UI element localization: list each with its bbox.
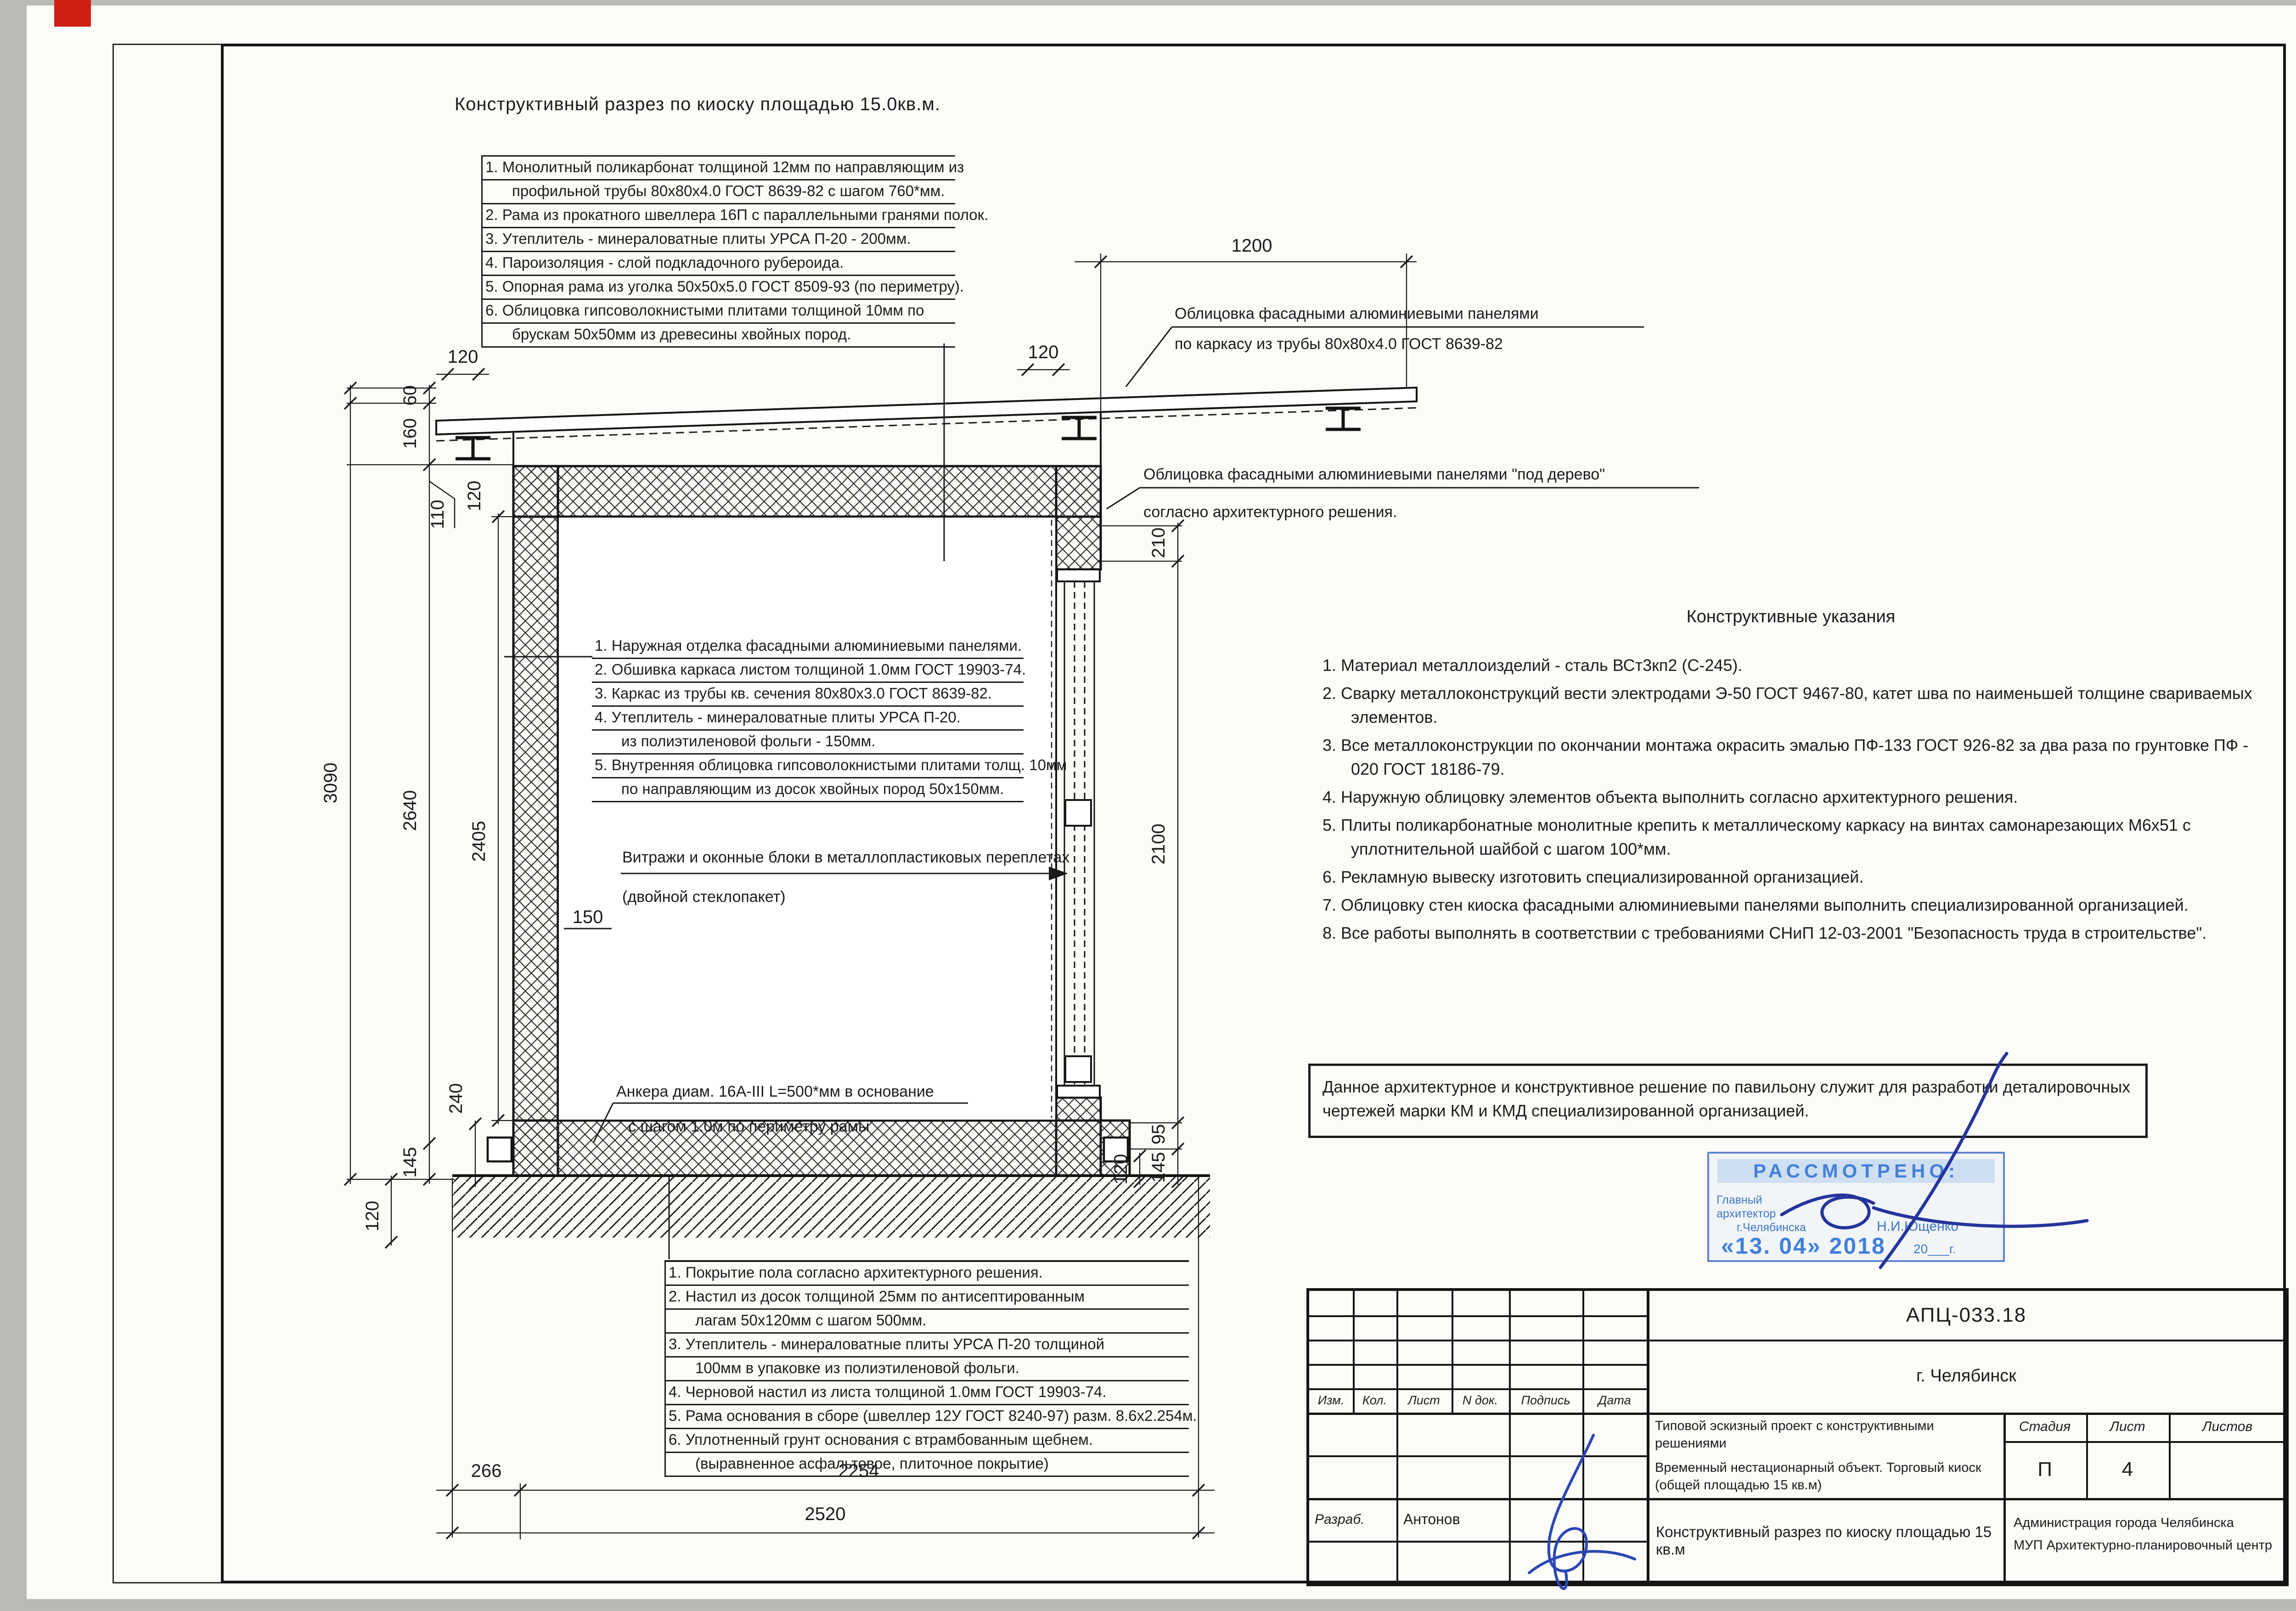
list-line: лагам 50х120мм с шагом 500мм. — [666, 1310, 1189, 1334]
left-wall — [513, 466, 558, 1176]
project-line3: (общей площадью 15 кв.м) — [1655, 1476, 1995, 1494]
organization-cell: Администрация города Челябинска МУП Архи… — [2003, 1498, 2286, 1583]
org-line1: Администрация города Челябинска — [2014, 1515, 2276, 1531]
instructions-heading: Конструктивные указания — [1322, 607, 2259, 627]
col-izm: Изм. — [1309, 1388, 1353, 1413]
roof-assembly-notes: 1. Монолитный поликарбонат толщиной 12мм… — [481, 155, 955, 348]
list-line: 1. Наружная отделка фасадными алюминиевы… — [592, 635, 1024, 659]
list-line: из полиэтиленовой фольги - 150мм. — [592, 731, 1024, 755]
dim-120-embed: 120 — [362, 1201, 383, 1232]
list-line: (выравненное асфальтовое, плиточное покр… — [666, 1453, 1189, 1477]
col-list: Лист — [1396, 1388, 1452, 1413]
list-line: 5. Внутренняя облицовка гипсоволокнистым… — [592, 755, 1024, 778]
callout-windows-line1: Витражи и оконные блоки в металлопластик… — [622, 849, 1069, 866]
wall-assembly-notes: 1. Наружная отделка фасадными алюминиевы… — [592, 635, 1024, 802]
city: г. Челябинск — [1647, 1340, 2286, 1413]
sheet-label: Лист — [2086, 1413, 2169, 1441]
developer-name: Антонов — [1403, 1498, 1509, 1541]
dim-120-wall: 120 — [464, 481, 484, 512]
sheets-label: Листов — [2169, 1413, 2286, 1441]
project-line1: Типовой эскизный проект с конструктивным… — [1655, 1417, 1995, 1453]
sheet-title-cell: Конструктивный разрез по киоску площадью… — [1647, 1498, 2003, 1583]
scan-red-mark — [54, 0, 91, 27]
list-line: 4. Наружную облицовку элементов объекта … — [1322, 785, 2259, 809]
list-line: 5. Опорная рама из уголка 50х50х5.0 ГОСТ… — [483, 276, 955, 300]
callout-anchors-line1: Анкера диам. 16А-III L=500*мм в основани… — [616, 1083, 934, 1100]
dim-145-right: 145 — [1148, 1152, 1169, 1183]
dim-60: 60 — [400, 385, 420, 406]
col-podpis: Подпись — [1509, 1388, 1582, 1413]
project-line2: Временный нестационарный объект. Торговы… — [1655, 1459, 1995, 1476]
floor-assembly-notes: 1. Покрытие пола согласно архитектурного… — [664, 1260, 1189, 1477]
list-line: 5. Рама основания в сборе (швеллер 12У Г… — [666, 1405, 1189, 1429]
list-line: 2. Рама из прокатного швеллера 16П с пар… — [483, 204, 955, 228]
callout-facade-wood-line1: Облицовка фасадными алюминиевыми панелям… — [1143, 466, 1605, 483]
list-line: 4. Пароизоляция - слой подкладочного руб… — [483, 252, 955, 276]
list-line: 6. Уплотненный грунт основания с втрамбо… — [666, 1429, 1189, 1453]
list-line: 2. Сварку металлоконструкций вести элект… — [1322, 682, 2259, 729]
instructions-list: 1. Материал металлоизделий - сталь ВСт3к… — [1322, 653, 2259, 945]
dim-240: 240 — [446, 1083, 466, 1114]
list-line: 3. Утеплитель - минераловатные плиты УРС… — [666, 1334, 1189, 1358]
stage-label: Стадия — [2003, 1413, 2086, 1441]
developer-signature — [1502, 1421, 1649, 1605]
list-line: 6. Облицовка гипсоволокнистыми плитами т… — [483, 300, 955, 324]
callout-facade-top-line1: Облицовка фасадными алюминиевыми панелям… — [1175, 305, 1539, 322]
interior-space — [558, 517, 1056, 1121]
list-line: 5. Плиты поликарбонатные монолитные креп… — [1322, 813, 2259, 861]
project-description: Типовой эскизный проект с конструктивным… — [1647, 1413, 2003, 1498]
list-line: профильной трубы 80х80х4.0 ГОСТ 8639-82 … — [483, 180, 955, 204]
dim-3090: 3090 — [321, 763, 341, 804]
dim-210: 210 — [1148, 528, 1169, 558]
list-line: 4. Утеплитель - минераловатные плиты УРС… — [592, 707, 1024, 731]
callout-facade-wood-line2: согласно архитектурного решения. — [1143, 503, 1397, 521]
architect-signature — [1671, 1052, 2108, 1281]
dim-95: 95 — [1148, 1124, 1169, 1145]
callout-anchors-line2: с шагом 1.0м по периметру рамы — [628, 1118, 869, 1135]
dim-120-roof-left: 120 — [448, 347, 478, 367]
dim-160: 160 — [400, 418, 420, 449]
dim-2520: 2520 — [805, 1504, 846, 1524]
list-line: 3. Каркас из трубы кв. сечения 80х80х3.0… — [592, 683, 1024, 707]
list-line: 100мм в упаковке из полиэтиленовой фольг… — [666, 1358, 1189, 1381]
list-line: брускам 50х50мм из древесины хвойных пор… — [483, 324, 955, 348]
list-line: 7. Облицовку стен киоска фасадными алюми… — [1322, 893, 2259, 917]
doc-number: АПЦ-033.18 — [1647, 1291, 2286, 1340]
dim-145-left: 145 — [400, 1147, 420, 1178]
org-line2: МУП Архитектурно-планировочный центр — [2014, 1538, 2276, 1553]
dim-2405: 2405 — [469, 821, 489, 862]
dim-2640: 2640 — [400, 790, 420, 831]
list-line: 4. Черновой настил из листа толщиной 1.0… — [666, 1381, 1189, 1405]
dim-110: 110 — [428, 500, 448, 529]
drawing-title: Конструктивный разрез по киоску площадью… — [455, 94, 940, 115]
list-line: 3. Все металлоконструкции по окончании м… — [1322, 733, 2259, 781]
callout-facade-top-line2: по каркасу из трубы 80х80х4.0 ГОСТ 8639-… — [1175, 335, 1503, 353]
ground — [452, 1176, 1210, 1238]
dim-120-roof-right: 120 — [1028, 342, 1059, 362]
list-line: 2. Настил из досок толщиной 25мм по анти… — [666, 1286, 1189, 1310]
list-line: 3. Утеплитель - минераловатные плиты УРС… — [483, 228, 955, 252]
dim-1200: 1200 — [1232, 236, 1272, 256]
dim-120-floor: 120 — [1111, 1154, 1131, 1185]
title-block: АПЦ-033.18 г. Челябинск Изм. Кол. Лист N… — [1306, 1288, 2289, 1586]
list-line: 1. Материал металлоизделий - сталь ВСт3к… — [1322, 653, 2259, 677]
constructive-instructions: Конструктивные указания 1. Материал мета… — [1322, 607, 2259, 949]
roof-panel — [436, 388, 1417, 441]
ceiling-band — [513, 466, 1101, 517]
list-line: по направляющим из досок хвойных пород 5… — [592, 778, 1024, 802]
col-data: Дата — [1582, 1388, 1647, 1413]
list-line: 2. Обшивка каркаса листом толщиной 1.0мм… — [592, 659, 1024, 683]
col-ndok: N док. — [1452, 1388, 1509, 1413]
callout-windows-line2: (двойной стеклопакет) — [622, 888, 786, 906]
dim-2100: 2100 — [1148, 824, 1169, 865]
sheet-number: 4 — [2086, 1441, 2169, 1498]
list-line: 1. Монолитный поликарбонат толщиной 12мм… — [483, 157, 955, 180]
dim-266: 266 — [471, 1461, 502, 1481]
list-line: 6. Рекламную вывеску изготовить специали… — [1322, 865, 2259, 889]
stage-value: П — [2003, 1441, 2086, 1498]
developer-label: Разраб. — [1315, 1498, 1396, 1541]
list-line: 1. Покрытие пола согласно архитектурного… — [666, 1262, 1189, 1286]
window-vitrage — [1057, 569, 1100, 1098]
dim-150: 150 — [573, 907, 603, 927]
col-kol: Кол. — [1353, 1388, 1396, 1413]
list-line: 8. Все работы выполнять в соответствии с… — [1322, 921, 2259, 945]
